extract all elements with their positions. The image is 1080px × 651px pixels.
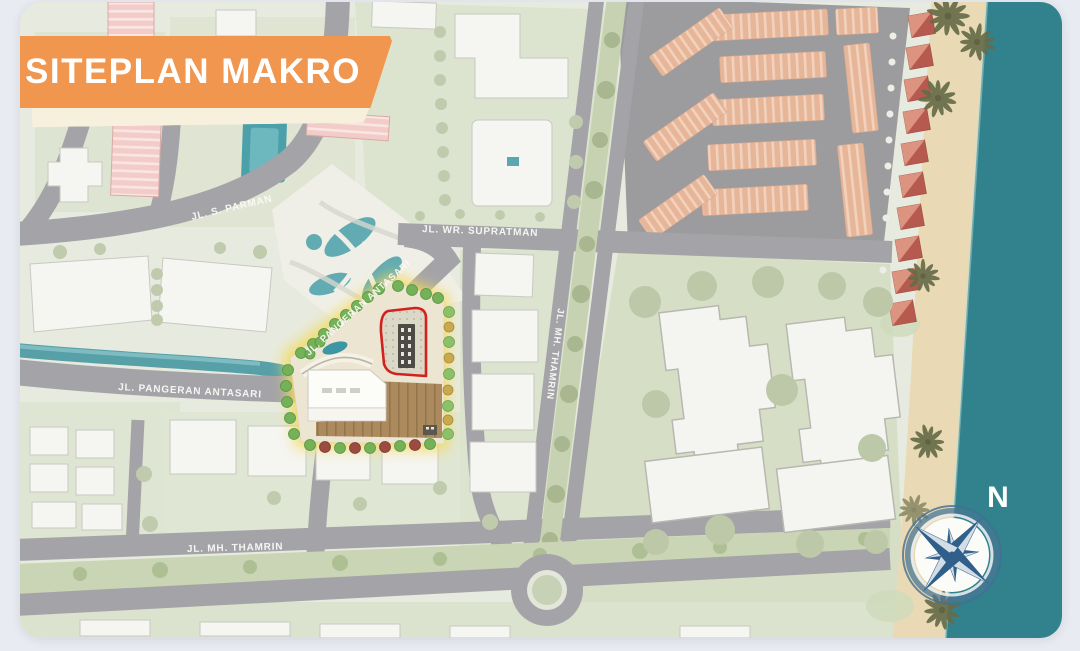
road-block-vertical <box>132 420 138 547</box>
roundabout <box>511 554 583 626</box>
compass-north-label: N <box>987 481 1009 514</box>
site-tower-footprint <box>398 324 415 368</box>
page-title: SITEPLAN MAKRO <box>25 52 387 92</box>
title-banner: SITEPLAN MAKRO <box>20 36 392 108</box>
site-mall-building <box>308 370 386 408</box>
pink-rowhouse <box>108 2 154 38</box>
page: { "page": { "background_color": "#e9ebf2… <box>0 0 1080 651</box>
siteplan-card: N JL. S. PARMAN JL. WR. SUPRATMAN JL. MH… <box>20 2 1062 638</box>
